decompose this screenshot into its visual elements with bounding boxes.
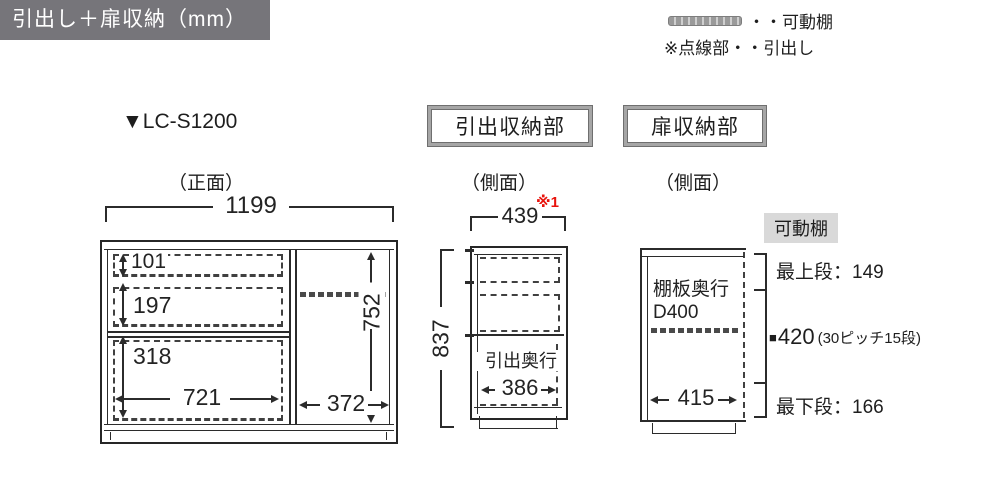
door-movable-shelf-line bbox=[651, 328, 741, 333]
front-drawer-divider-a bbox=[108, 331, 290, 333]
drawer2-side-outline bbox=[480, 294, 560, 332]
dim-439-right-tick bbox=[564, 216, 566, 231]
drawer-side-top-inner bbox=[474, 254, 562, 255]
dim-1199-left-tick bbox=[105, 206, 107, 222]
section-header-door-unit: 扉収納部 bbox=[624, 106, 766, 146]
drawer-side-plinth-right bbox=[556, 416, 557, 428]
shelf-top-row: 最上段：149 bbox=[776, 257, 884, 284]
dim-197-arrow-line bbox=[122, 289, 124, 320]
front-center-divider-b bbox=[295, 249, 297, 425]
dim-372-line-left bbox=[306, 404, 320, 406]
legend-drawer-note: ※点線部・・引出し bbox=[664, 34, 814, 59]
door-side-front-dash bbox=[743, 252, 745, 418]
dim-door-width: 372 bbox=[320, 391, 372, 415]
front-plinth-right-inset bbox=[386, 432, 387, 440]
model-label: ▼LC-S1200 bbox=[122, 110, 237, 134]
dim-door-height: 752 bbox=[359, 283, 386, 343]
drawer1-side-outline bbox=[480, 257, 560, 283]
drawer-front-tick-1 bbox=[465, 249, 474, 252]
drawer-side-plinth-left bbox=[479, 416, 480, 428]
door-side-caption: （側面） bbox=[655, 168, 731, 195]
front-bottom-inner-line bbox=[104, 424, 394, 425]
front-view-caption: （正面） bbox=[168, 168, 244, 195]
door-side-left-inner bbox=[647, 256, 648, 420]
shelf-depth-label: 棚板奥行 bbox=[651, 280, 731, 300]
square-marker-icon: ■ bbox=[769, 330, 777, 345]
door-side-left-edge bbox=[640, 248, 642, 422]
movable-shelf-title: 可動棚 bbox=[764, 213, 838, 243]
front-plinth-left-inset bbox=[110, 432, 111, 440]
shelf-bottom-row: 最下段：166 bbox=[776, 392, 884, 419]
dim-197-arrow-down bbox=[119, 318, 127, 326]
dim-side-top-width: 439 bbox=[498, 204, 542, 227]
dim-386-line-right bbox=[541, 389, 548, 391]
dim-439-line-left bbox=[470, 216, 498, 218]
shelf-bracket-tick-3 bbox=[754, 382, 766, 384]
drawer-side-plinth-bottom bbox=[479, 428, 558, 429]
movable-shelf-symbol bbox=[668, 16, 742, 26]
dim-door-inner-width: 415 bbox=[670, 386, 722, 409]
front-right-panel-line bbox=[389, 249, 390, 425]
dim-837-line-bottom bbox=[440, 370, 442, 428]
dim-386-line-left bbox=[488, 389, 495, 391]
shelf-bracket-line bbox=[765, 253, 767, 418]
shelf-pitch-value: 420 bbox=[778, 324, 815, 350]
dim-1199-right-tick bbox=[392, 206, 394, 222]
door-side-plinth-bottom bbox=[652, 433, 736, 434]
drawer-side-divider bbox=[472, 334, 564, 336]
shelf-bracket-tick-4 bbox=[754, 416, 766, 418]
page-title: 引出し＋扉収納（mm） bbox=[0, 0, 270, 40]
dim-752-arrow-down bbox=[367, 415, 375, 423]
drawer3-side-bottom-dash bbox=[480, 404, 558, 406]
legend-movable-shelf-label: ・・可動棚 bbox=[748, 8, 833, 33]
dim-1199-line-right bbox=[286, 206, 394, 208]
dim-837-bottom-tick bbox=[440, 426, 454, 428]
door-side-top-inner bbox=[642, 256, 744, 257]
door-side-bottom-edge bbox=[640, 420, 746, 422]
diagram-canvas: 引出し＋扉収納（mm） ・・可動棚 ※点線部・・引出し ▼LC-S1200 引出… bbox=[0, 0, 1000, 500]
dim-drawer-depth: 386 bbox=[495, 376, 545, 399]
dim-415-line-left bbox=[657, 399, 669, 401]
dim-837-top-tick bbox=[440, 249, 454, 251]
dim-372-line-right bbox=[368, 404, 382, 406]
dim-318-arrow-down bbox=[119, 410, 127, 418]
dim-drawer3-height: 318 bbox=[131, 344, 173, 368]
shelf-pitch-row: ■ 420 (30ピッチ15段) bbox=[769, 324, 921, 350]
dim-side-total-height: 837 bbox=[428, 309, 455, 369]
shelf-pitch-note: (30ピッチ15段) bbox=[818, 327, 921, 348]
door-side-top-edge bbox=[640, 248, 746, 250]
dim-439-left-tick bbox=[470, 216, 472, 231]
dim-439-line-right bbox=[538, 216, 566, 218]
dim-837-line-top bbox=[440, 249, 442, 307]
dim-drawer2-height: 197 bbox=[131, 293, 173, 317]
dim-721-line-left bbox=[122, 398, 170, 400]
dim-721-line-right bbox=[230, 398, 272, 400]
drawer-side-caption: （側面） bbox=[461, 168, 537, 195]
shelf-bracket-tick-2 bbox=[754, 289, 766, 291]
drawer-side-bottom-inner bbox=[474, 407, 562, 408]
section-header-drawer-unit: 引出収納部 bbox=[428, 106, 592, 146]
dim-drawer3-width: 721 bbox=[172, 385, 232, 409]
dim-415-arrow-right bbox=[729, 396, 737, 404]
dim-372-arrow-right bbox=[381, 401, 389, 409]
shelf-depth-value: D400 bbox=[651, 303, 700, 323]
dim-drawer1-height: 101 bbox=[129, 251, 168, 273]
front-drawer-divider-b bbox=[108, 336, 290, 338]
shelf-bracket-tick-1 bbox=[754, 253, 766, 255]
dim-total-width: 1199 bbox=[213, 193, 289, 218]
drawer-front-tick-2 bbox=[465, 281, 474, 284]
dim-1199-line-left bbox=[105, 206, 213, 208]
drawer-depth-label: 引出奥行 bbox=[477, 352, 565, 371]
dim-386-arrow-right bbox=[548, 386, 556, 394]
dim-101-arrow-down bbox=[119, 269, 127, 277]
dim-721-arrow-right bbox=[271, 395, 279, 403]
front-plinth-top-line bbox=[104, 430, 394, 431]
